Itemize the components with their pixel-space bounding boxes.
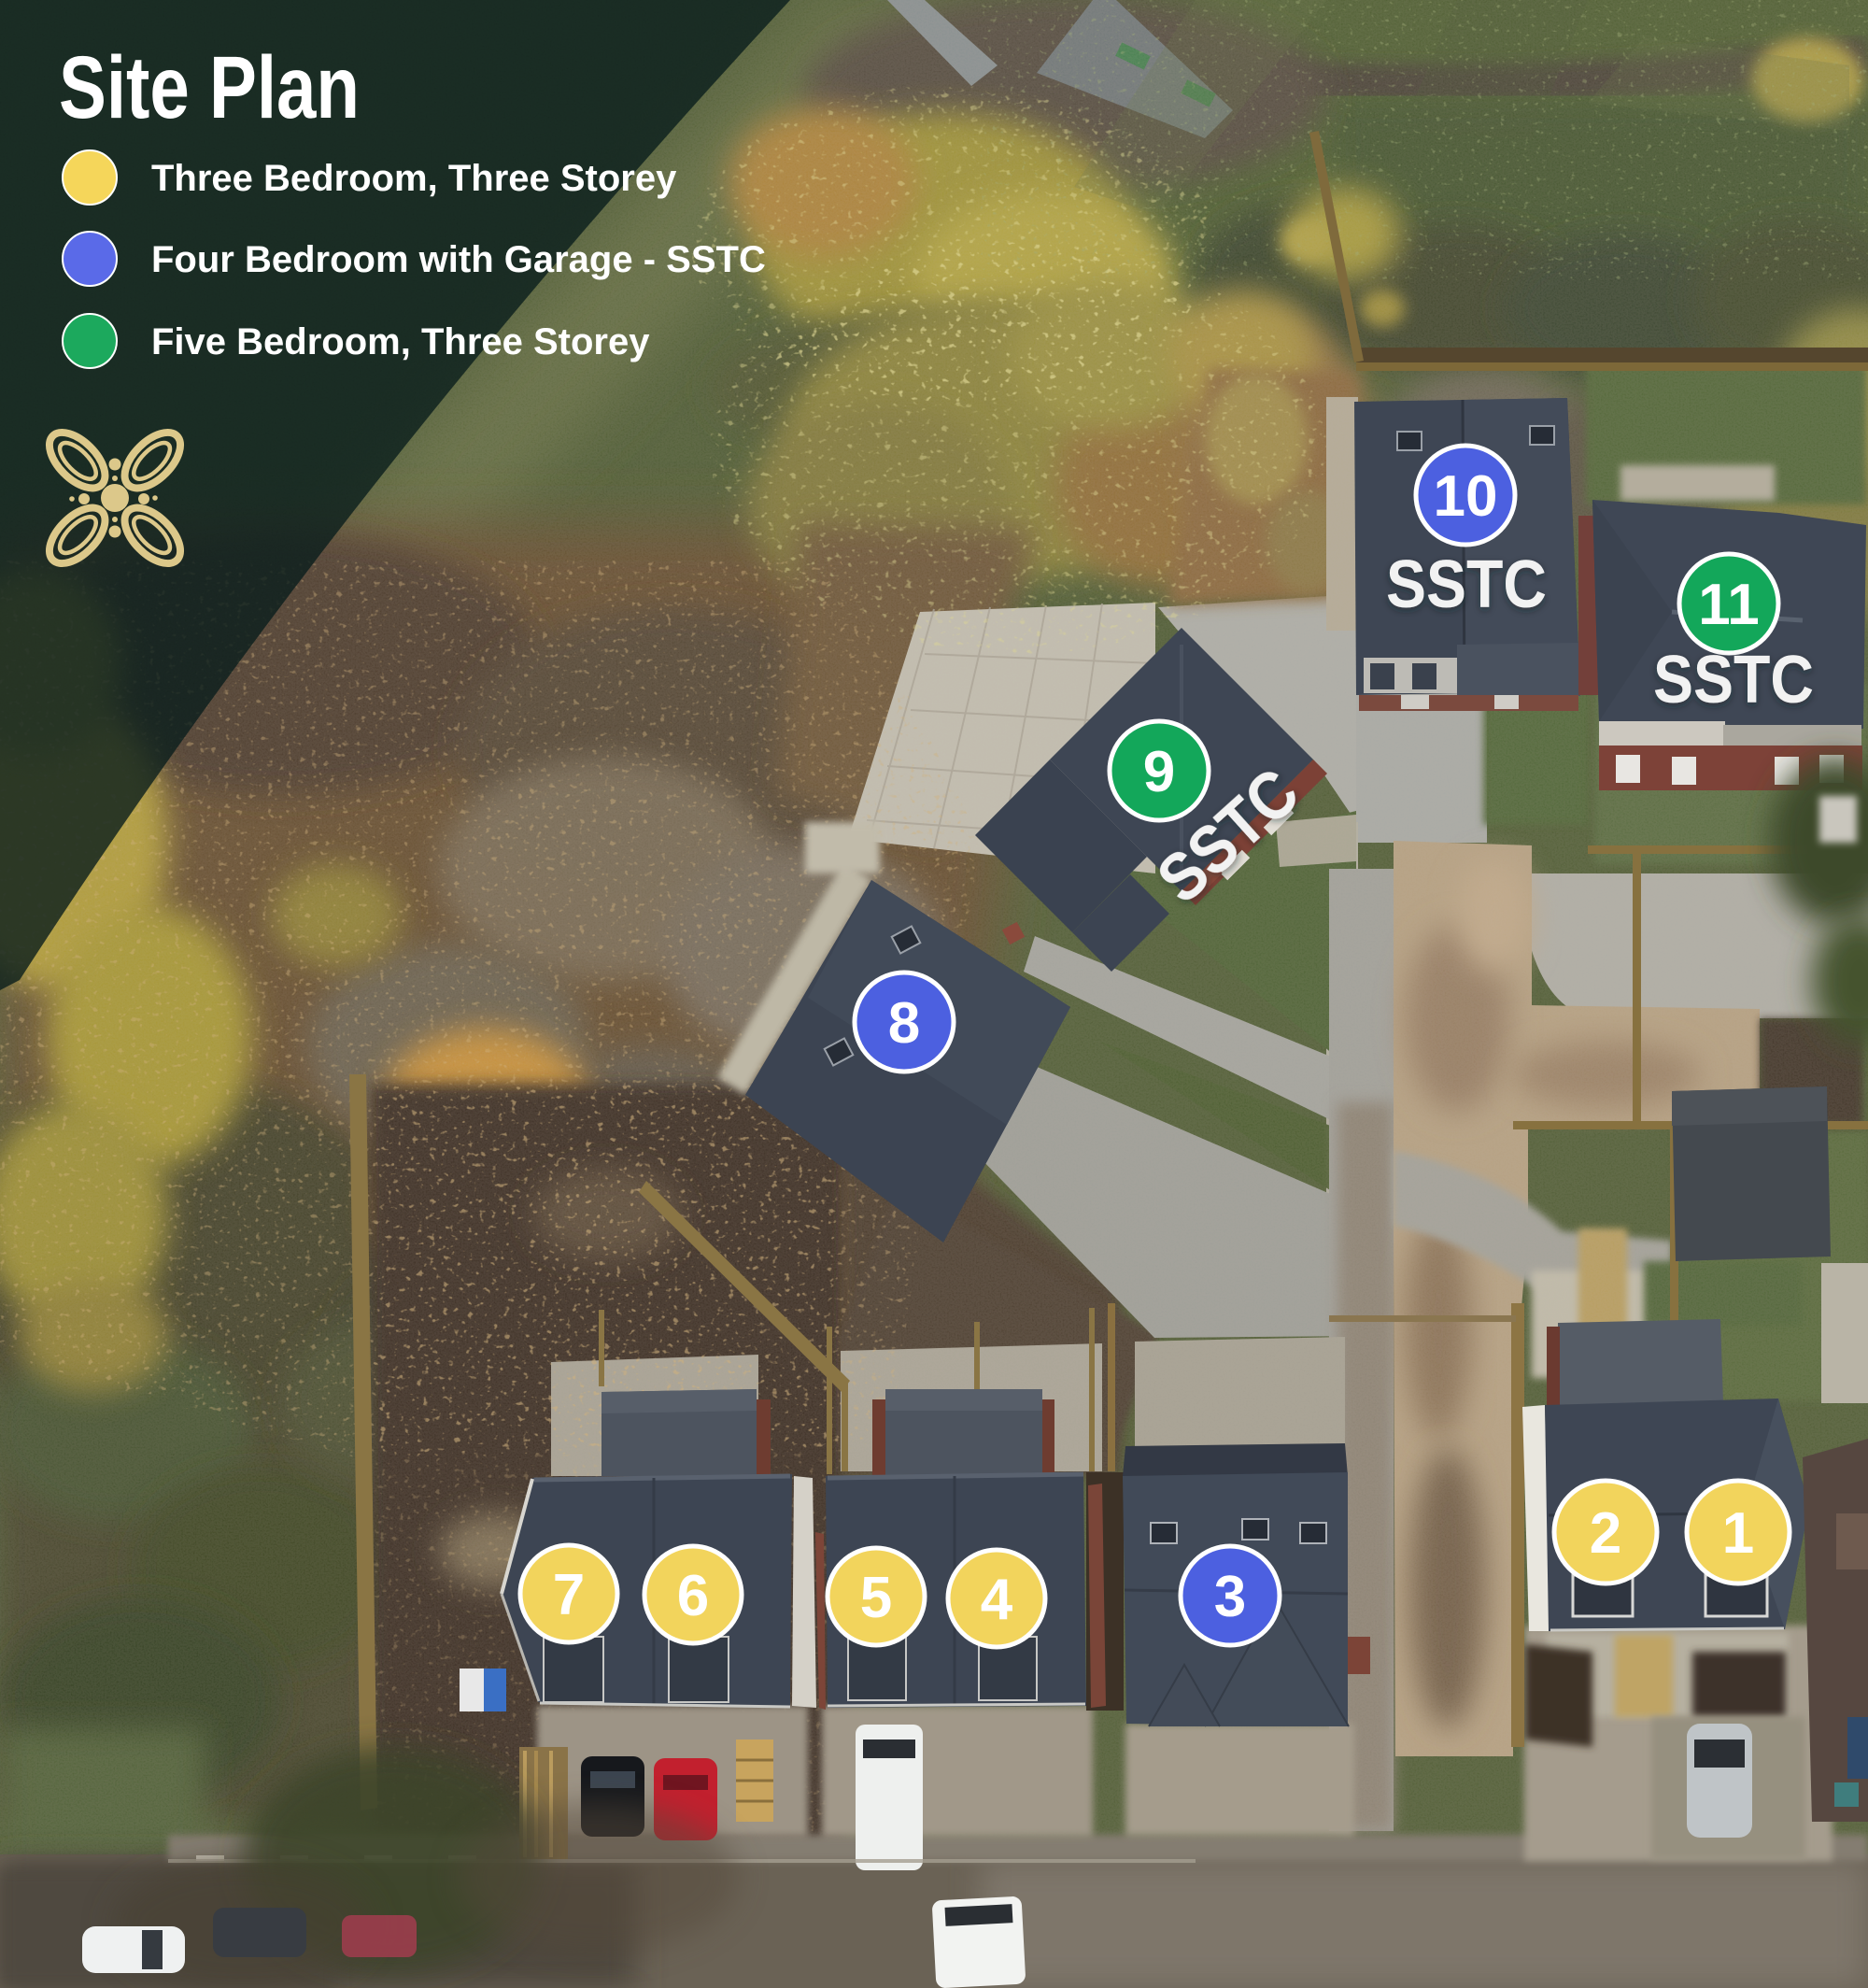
svg-text:10: 10 — [1434, 464, 1498, 529]
svg-text:9: 9 — [1143, 740, 1175, 804]
svg-text:Site Plan: Site Plan — [59, 38, 360, 137]
svg-text:Three Bedroom, Three Storey: Three Bedroom, Three Storey — [151, 158, 677, 199]
svg-text:8: 8 — [888, 991, 920, 1056]
svg-text:Five Bedroom, Three Storey: Five Bedroom, Three Storey — [151, 321, 650, 362]
svg-text:2: 2 — [1590, 1501, 1621, 1566]
svg-text:3: 3 — [1214, 1565, 1246, 1629]
svg-text:6: 6 — [677, 1564, 709, 1628]
svg-text:5: 5 — [860, 1566, 892, 1630]
svg-text:7: 7 — [553, 1563, 585, 1627]
svg-text:SSTC: SSTC — [1653, 643, 1814, 717]
svg-text:1: 1 — [1722, 1501, 1754, 1566]
svg-text:4: 4 — [981, 1568, 1013, 1632]
svg-text:11: 11 — [1698, 573, 1760, 637]
svg-text:SSTC: SSTC — [1386, 547, 1547, 622]
svg-text:Four Bedroom with Garage - SST: Four Bedroom with Garage - SSTC — [151, 239, 766, 280]
